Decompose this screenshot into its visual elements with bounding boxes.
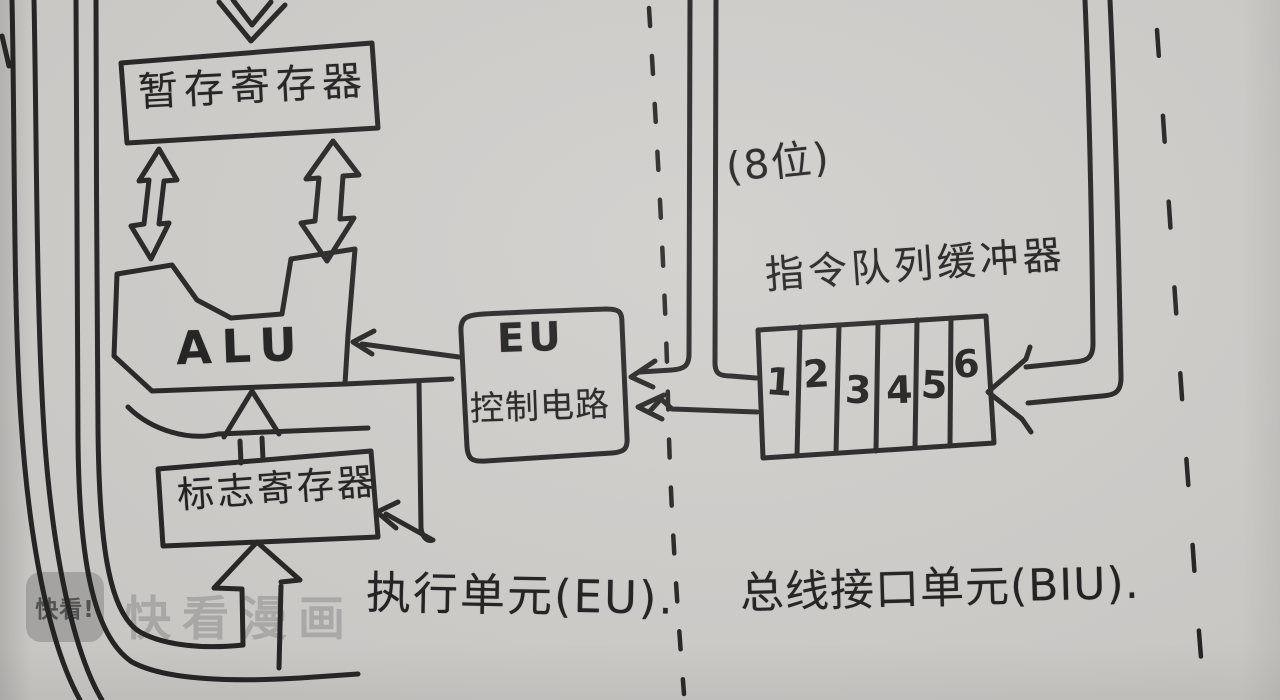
bus-into-queue	[988, 0, 1121, 432]
biu-caption: 总线接口单元(BIU).	[739, 561, 1140, 618]
queue-to-eu-channel	[631, 0, 757, 419]
alu-to-flag-arrow	[377, 383, 433, 540]
flag-to-alu-arrow	[224, 391, 279, 463]
queue-cell-2: 2	[802, 351, 831, 396]
outer-bus-lines	[2, 0, 102, 700]
instruction-queue-box	[758, 316, 994, 458]
eu-to-alu-arrow	[353, 331, 459, 357]
bus-to-flag-arrowhead	[214, 542, 300, 589]
hand-drawn-cpu-diagram: 快看! 快看漫画	[0, 0, 1280, 700]
queue-cell-3: 3	[844, 368, 872, 413]
eu-control-label-line2: 控制电路	[469, 388, 610, 429]
alu-label: ALU	[175, 320, 307, 373]
queue-cell-4: 4	[885, 368, 913, 413]
queue-cell-5: 5	[920, 362, 949, 407]
eu-caption: 执行单元(EU).	[366, 569, 676, 622]
double-arrows	[131, 141, 359, 261]
eu-control-label-line1: EU	[496, 316, 565, 360]
bits-note-label: (8位)	[724, 137, 832, 190]
queue-cell-1: 1	[764, 359, 793, 405]
queue-cell-6: 6	[951, 341, 980, 387]
top-down-arrow	[219, 0, 285, 41]
